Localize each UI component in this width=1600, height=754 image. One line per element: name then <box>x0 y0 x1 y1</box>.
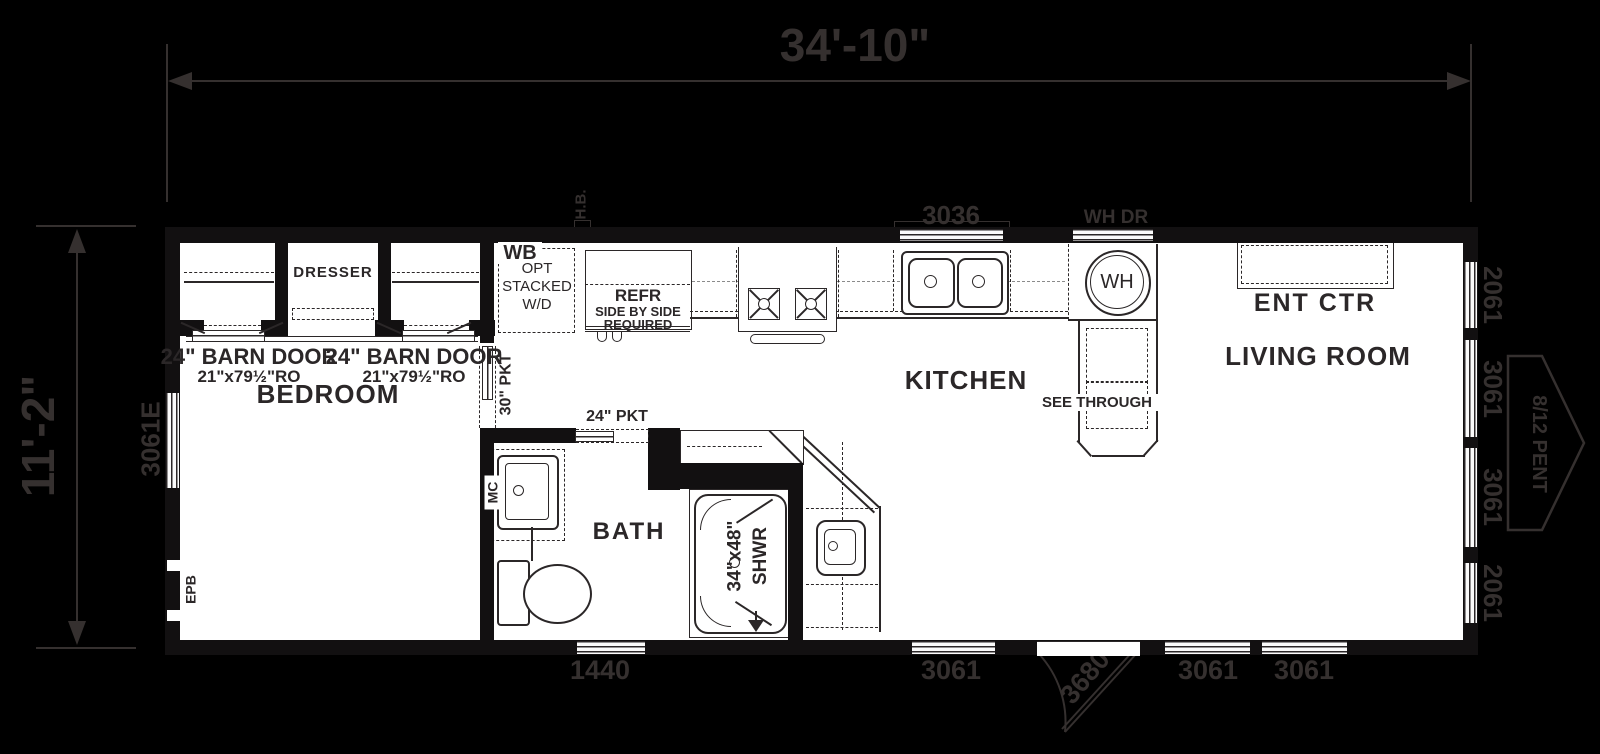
bottom-window-1440-label: 1440 <box>550 655 650 685</box>
barn-door-1-ro-label: 21"x79½"RO <box>164 367 334 386</box>
closet-shelf-left <box>184 272 274 273</box>
right-window-label-4: 2061 <box>1481 558 1505 628</box>
extension-line-right <box>1470 44 1472 202</box>
floor-plan-canvas: 34'-10" 11'-2" H.B. 3036 WH DR 2061 3061… <box>0 0 1600 754</box>
entry-door-opening <box>1037 641 1140 656</box>
window-bottom-3061c <box>1262 641 1347 654</box>
window-1440 <box>577 641 645 654</box>
epb-label: EPB <box>183 568 198 612</box>
closet-partition-1 <box>275 243 288 321</box>
burner-icon-1 <box>748 288 780 320</box>
bar-dash-h3 <box>806 627 878 628</box>
right-window-label-1: 2061 <box>1481 260 1505 330</box>
closet-opening-dash-left <box>204 325 261 326</box>
arrow-right-icon <box>1447 72 1471 90</box>
closet-south-b <box>261 320 288 336</box>
mc-label: MC <box>485 476 500 510</box>
room-label-living: LIVING ROOM <box>1218 342 1418 371</box>
dimension-width-line <box>192 80 1447 82</box>
cabinet-div-1 <box>736 250 737 317</box>
window-bottom-3061a <box>912 641 995 654</box>
window-bottom-3061b <box>1165 641 1250 654</box>
roof-pent-label: 8/12 PENT <box>1528 384 1550 504</box>
extension-tick-bottom <box>36 647 136 649</box>
arrow-up-icon <box>68 229 86 253</box>
cabinet-div-4 <box>1010 250 1011 311</box>
wh-alcove-dash <box>1068 244 1069 320</box>
seethrough-bottom <box>1092 455 1145 457</box>
burner-icon-2 <box>795 288 827 320</box>
barn-door-slab-right <box>402 330 475 342</box>
barn-door-2-ro-label: 21"x79½"RO <box>329 367 499 386</box>
wall-shower-east <box>788 463 803 640</box>
seethrough-east <box>1156 321 1158 442</box>
bottom-window-3061b-label: 3061 <box>1158 655 1258 685</box>
shower-label: SHWR <box>751 521 771 591</box>
lavatory-drain <box>513 485 524 496</box>
wall-bath-north <box>480 428 576 443</box>
wh-label: WH <box>1087 271 1147 293</box>
extension-tick-top <box>36 225 136 227</box>
sink-drain-right <box>972 275 985 288</box>
bar-east-edge <box>879 506 881 632</box>
plumbing-line <box>531 527 533 561</box>
cabinet-div-2 <box>838 250 839 317</box>
range-handle <box>750 334 825 344</box>
wall-wd-west <box>480 243 494 343</box>
window-3061e <box>166 393 179 488</box>
left-window-label: 3061E <box>138 392 164 487</box>
ent-ctr-label: ENT CTR <box>1215 290 1415 317</box>
wd-label: W/D <box>507 296 567 312</box>
sink-drain-left <box>924 275 937 288</box>
closet-shelf-right <box>392 272 479 273</box>
opt-label: OPT <box>507 260 567 276</box>
room-label-kitchen: KITCHEN <box>866 365 1066 395</box>
overhead-cabinet-dash <box>687 446 762 447</box>
wall-shower-north <box>680 463 803 489</box>
dresser-label: DRESSER <box>283 263 383 281</box>
dimension-height-label: 11'-2" <box>12 351 64 521</box>
refrigerator-hookup-2 <box>612 332 622 342</box>
room-label-bath: BATH <box>554 518 704 545</box>
seethrough-west <box>1078 321 1080 442</box>
dresser-front-dashed <box>292 308 374 320</box>
window-right-2061b <box>1464 563 1477 623</box>
extension-line-left <box>166 44 168 202</box>
closet-partition-2 <box>378 243 391 321</box>
pocket-24-label: 24" PKT <box>576 408 658 425</box>
bar-sink-drain <box>828 541 838 551</box>
refr-label: REFR <box>588 287 688 305</box>
dimension-height-line <box>76 250 78 624</box>
wall-bed-bath-divider <box>480 428 494 640</box>
bar-dash-h2 <box>806 584 878 585</box>
barn-door-2-label: 24" BARN DOOR <box>314 345 514 369</box>
cabinet-div-3 <box>893 250 894 311</box>
bottom-window-3061c-label: 3061 <box>1254 655 1354 685</box>
wh-alcove-east <box>1156 244 1158 321</box>
closet-rod-right <box>392 281 479 283</box>
arrow-left-icon <box>168 72 192 90</box>
pocket-door-24-slab <box>575 431 614 442</box>
epb-panel-mark-1 <box>167 560 180 571</box>
refrigerator-hookup-1 <box>597 332 607 342</box>
wall-top <box>165 227 1478 243</box>
window-3036 <box>900 229 1003 241</box>
wh-alcove-south <box>1068 319 1158 321</box>
seethrough-shelf-1 <box>1086 328 1148 383</box>
toilet-bowl <box>523 564 592 624</box>
window-right-3061a <box>1464 340 1477 437</box>
ent-ctr-dashed <box>1241 245 1388 284</box>
lavatory-inner <box>505 463 549 520</box>
see-through-label: SEE THROUGH <box>1032 394 1162 411</box>
wh-access-door <box>1073 229 1153 241</box>
wall-bath-post <box>648 428 680 490</box>
refrigerator-dash <box>585 284 690 285</box>
closet-rod-left <box>184 281 274 283</box>
showerhead-icon <box>748 620 764 632</box>
pocket-30-label: 30" PKT <box>498 344 515 426</box>
refr-line3-label: REQUIRED <box>588 317 688 331</box>
dimension-width-label: 34'-10" <box>705 16 1005 74</box>
window-right-2061a <box>1464 262 1477 328</box>
epb-panel-mark-2 <box>167 610 180 621</box>
bar-dash-h1 <box>806 508 878 509</box>
arrow-down-icon <box>68 621 86 645</box>
bottom-window-3061a-label: 3061 <box>901 655 1001 685</box>
stacked-label: STACKED <box>502 278 572 294</box>
window-right-3061b <box>1464 448 1477 547</box>
shower-size-label: 34"x48" <box>726 509 746 604</box>
